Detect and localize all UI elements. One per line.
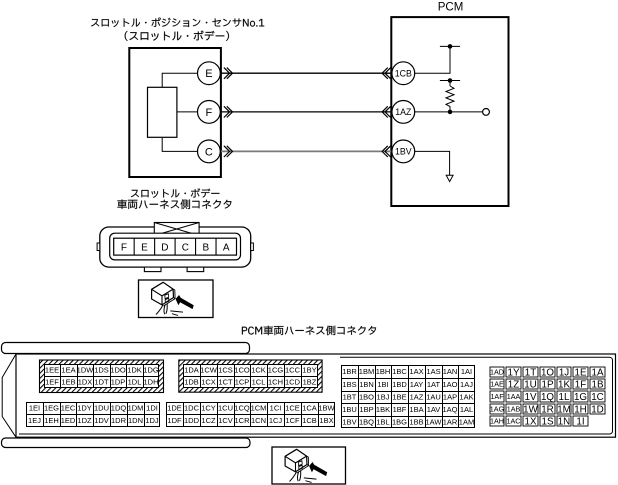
- svg-text:1CR: 1CR: [234, 416, 250, 425]
- svg-text:1BL: 1BL: [376, 418, 389, 427]
- svg-text:1BH: 1BH: [376, 367, 391, 376]
- svg-text:1BK: 1BK: [376, 405, 390, 414]
- svg-text:1DB: 1DB: [184, 378, 199, 387]
- svg-text:1BM: 1BM: [359, 367, 374, 376]
- svg-text:1AJ: 1AJ: [460, 380, 473, 389]
- svg-text:1AP: 1AP: [443, 393, 457, 402]
- svg-text:1CE: 1CE: [285, 404, 300, 413]
- svg-text:1DV: 1DV: [94, 416, 109, 425]
- svg-text:1BQ: 1BQ: [359, 418, 374, 427]
- svg-text:1A: 1A: [592, 368, 604, 379]
- svg-text:1CJ: 1CJ: [269, 416, 283, 425]
- svg-text:1Q: 1Q: [541, 392, 554, 403]
- svg-text:1CO: 1CO: [234, 366, 250, 375]
- svg-text:1O: 1O: [541, 368, 554, 379]
- svg-text:1BR: 1BR: [342, 367, 357, 376]
- svg-text:1C: 1C: [591, 392, 604, 403]
- svg-text:1AQ: 1AQ: [442, 405, 457, 414]
- svg-text:1AY: 1AY: [410, 380, 424, 389]
- svg-text:1CB: 1CB: [302, 416, 317, 425]
- svg-text:1EA: 1EA: [61, 366, 75, 375]
- svg-text:1DM: 1DM: [128, 404, 144, 413]
- svg-text:1DA: 1DA: [184, 366, 199, 375]
- svg-text:1BC: 1BC: [392, 367, 407, 376]
- svg-text:1BG: 1BG: [392, 418, 407, 427]
- svg-text:1DW: 1DW: [77, 366, 95, 375]
- svg-text:1BJ: 1BJ: [377, 393, 390, 402]
- svg-text:1CD: 1CD: [285, 378, 301, 387]
- svg-text:1AZ: 1AZ: [410, 393, 424, 402]
- svg-text:1S: 1S: [542, 417, 554, 428]
- svg-text:1DJ: 1DJ: [145, 416, 159, 425]
- svg-text:1E: 1E: [575, 368, 587, 379]
- svg-text:1DS: 1DS: [94, 366, 109, 375]
- svg-text:F: F: [121, 242, 127, 253]
- svg-text:1DX: 1DX: [78, 378, 93, 387]
- svg-text:1EB: 1EB: [61, 378, 75, 387]
- svg-text:1B: 1B: [592, 380, 604, 391]
- svg-text:1AH: 1AH: [490, 417, 504, 426]
- svg-text:1AN: 1AN: [443, 367, 458, 376]
- svg-text:F: F: [206, 107, 213, 119]
- svg-text:1BW: 1BW: [318, 404, 335, 413]
- svg-text:1J: 1J: [559, 368, 569, 379]
- svg-text:1I: 1I: [576, 417, 584, 428]
- svg-text:1K: 1K: [558, 380, 570, 391]
- svg-text:1M: 1M: [557, 405, 571, 416]
- svg-text:1L: 1L: [559, 392, 570, 403]
- svg-text:1DG: 1DG: [143, 366, 159, 375]
- svg-text:1BD: 1BD: [392, 380, 407, 389]
- svg-text:1DZ: 1DZ: [77, 416, 92, 425]
- svg-text:1CB: 1CB: [395, 68, 412, 78]
- svg-text:1CP: 1CP: [235, 378, 250, 387]
- svg-text:1EE: 1EE: [45, 366, 59, 375]
- svg-text:1BP: 1BP: [359, 405, 373, 414]
- svg-text:1BU: 1BU: [342, 405, 357, 414]
- svg-text:C: C: [205, 146, 213, 158]
- svg-text:1DT: 1DT: [94, 378, 109, 387]
- svg-text:1DY: 1DY: [77, 404, 92, 413]
- svg-text:1D: 1D: [591, 405, 604, 416]
- svg-text:1CZ: 1CZ: [201, 416, 216, 425]
- svg-text:1BI: 1BI: [377, 380, 388, 389]
- svg-text:1AW: 1AW: [426, 418, 443, 427]
- svg-text:1EI: 1EI: [29, 404, 40, 413]
- svg-text:1W: 1W: [523, 405, 538, 416]
- svg-text:1CA: 1CA: [302, 404, 317, 413]
- svg-text:1BA: 1BA: [409, 405, 423, 414]
- svg-text:1CL: 1CL: [252, 378, 266, 387]
- svg-text:1Z: 1Z: [508, 380, 519, 391]
- svg-text:1DI: 1DI: [146, 404, 158, 413]
- svg-text:1DR: 1DR: [111, 416, 127, 425]
- svg-text:1AU: 1AU: [426, 393, 441, 402]
- svg-text:1EF: 1EF: [45, 378, 59, 387]
- svg-text:1CV: 1CV: [218, 416, 233, 425]
- svg-text:C: C: [182, 242, 189, 253]
- svg-text:1G: 1G: [574, 392, 587, 403]
- svg-text:1DP: 1DP: [111, 378, 126, 387]
- svg-text:1DO: 1DO: [110, 366, 126, 375]
- svg-text:D: D: [161, 242, 168, 253]
- svg-text:1BY: 1BY: [302, 366, 316, 375]
- svg-text:1EG: 1EG: [44, 404, 59, 413]
- svg-text:1AV: 1AV: [427, 405, 441, 414]
- svg-text:1DF: 1DF: [167, 416, 182, 425]
- svg-text:1AG: 1AG: [490, 405, 505, 414]
- svg-text:1P: 1P: [542, 380, 554, 391]
- svg-text:1BB: 1BB: [409, 418, 423, 427]
- svg-text:1DD: 1DD: [184, 416, 200, 425]
- svg-text:1AO: 1AO: [442, 380, 457, 389]
- svg-text:1AT: 1AT: [427, 380, 441, 389]
- svg-text:1BS: 1BS: [342, 380, 356, 389]
- svg-text:1AE: 1AE: [490, 380, 504, 389]
- svg-text:E: E: [205, 68, 212, 80]
- svg-text:1N: 1N: [558, 417, 571, 428]
- svg-text:1DC: 1DC: [184, 404, 200, 413]
- svg-text:1AS: 1AS: [426, 367, 440, 376]
- svg-text:1CU: 1CU: [218, 404, 233, 413]
- svg-text:1BF: 1BF: [393, 405, 407, 414]
- svg-text:1CM: 1CM: [251, 404, 267, 413]
- svg-text:1CQ: 1CQ: [234, 404, 250, 413]
- svg-text:1EC: 1EC: [61, 404, 76, 413]
- svg-text:1BX: 1BX: [319, 416, 333, 425]
- svg-text:1CS: 1CS: [218, 366, 233, 375]
- svg-text:1CN: 1CN: [251, 416, 266, 425]
- svg-text:1DE: 1DE: [167, 404, 182, 413]
- svg-text:1DK: 1DK: [127, 366, 142, 375]
- svg-text:1DL: 1DL: [128, 378, 142, 387]
- svg-text:1BE: 1BE: [392, 393, 406, 402]
- svg-text:1AD: 1AD: [490, 368, 504, 377]
- svg-text:1R: 1R: [541, 405, 554, 416]
- svg-text:1CF: 1CF: [285, 416, 300, 425]
- svg-text:1U: 1U: [524, 380, 537, 391]
- svg-text:1AX: 1AX: [409, 367, 423, 376]
- svg-text:1AL: 1AL: [460, 405, 473, 414]
- svg-text:1EH: 1EH: [44, 416, 59, 425]
- svg-text:1CI: 1CI: [270, 404, 282, 413]
- svg-text:1DU: 1DU: [94, 404, 109, 413]
- svg-text:1AM: 1AM: [459, 418, 474, 427]
- svg-text:1DN: 1DN: [128, 416, 143, 425]
- svg-text:1V: 1V: [525, 392, 537, 403]
- svg-text:1AF: 1AF: [490, 392, 504, 401]
- svg-text:1AZ: 1AZ: [395, 107, 412, 117]
- svg-text:PCM: PCM: [438, 2, 464, 14]
- svg-text:1T: 1T: [525, 368, 536, 379]
- svg-text:1CY: 1CY: [201, 404, 216, 413]
- svg-text:1EJ: 1EJ: [28, 416, 41, 425]
- svg-text:1X: 1X: [525, 417, 537, 428]
- svg-text:1CK: 1CK: [251, 366, 266, 375]
- svg-text:1AR: 1AR: [443, 418, 458, 427]
- svg-text:1BT: 1BT: [343, 393, 357, 402]
- svg-text:1BO: 1BO: [359, 393, 374, 402]
- svg-text:1CG: 1CG: [268, 366, 284, 375]
- svg-text:B: B: [202, 242, 209, 253]
- svg-text:1AA: 1AA: [507, 392, 521, 401]
- svg-text:1AC: 1AC: [507, 417, 521, 426]
- svg-text:1CC: 1CC: [285, 366, 301, 375]
- svg-text:1CT: 1CT: [218, 378, 233, 387]
- svg-text:1BN: 1BN: [359, 380, 374, 389]
- svg-text:1BZ: 1BZ: [303, 378, 317, 387]
- svg-text:1DQ: 1DQ: [111, 404, 127, 413]
- svg-text:1DH: 1DH: [143, 378, 158, 387]
- svg-text:1H: 1H: [574, 405, 587, 416]
- svg-text:E: E: [141, 242, 148, 253]
- svg-text:1F: 1F: [575, 380, 586, 391]
- svg-text:1ED: 1ED: [61, 416, 76, 425]
- svg-text:1AI: 1AI: [461, 367, 472, 376]
- svg-text:1BV: 1BV: [395, 147, 412, 157]
- svg-text:1CW: 1CW: [200, 366, 218, 375]
- svg-text:1CH: 1CH: [268, 378, 283, 387]
- svg-text:1Y: 1Y: [508, 368, 520, 379]
- svg-text:A: A: [223, 242, 230, 253]
- svg-text:1BV: 1BV: [342, 418, 356, 427]
- svg-text:1AB: 1AB: [507, 405, 521, 414]
- svg-text:1AK: 1AK: [459, 393, 473, 402]
- svg-text:1CX: 1CX: [201, 378, 216, 387]
